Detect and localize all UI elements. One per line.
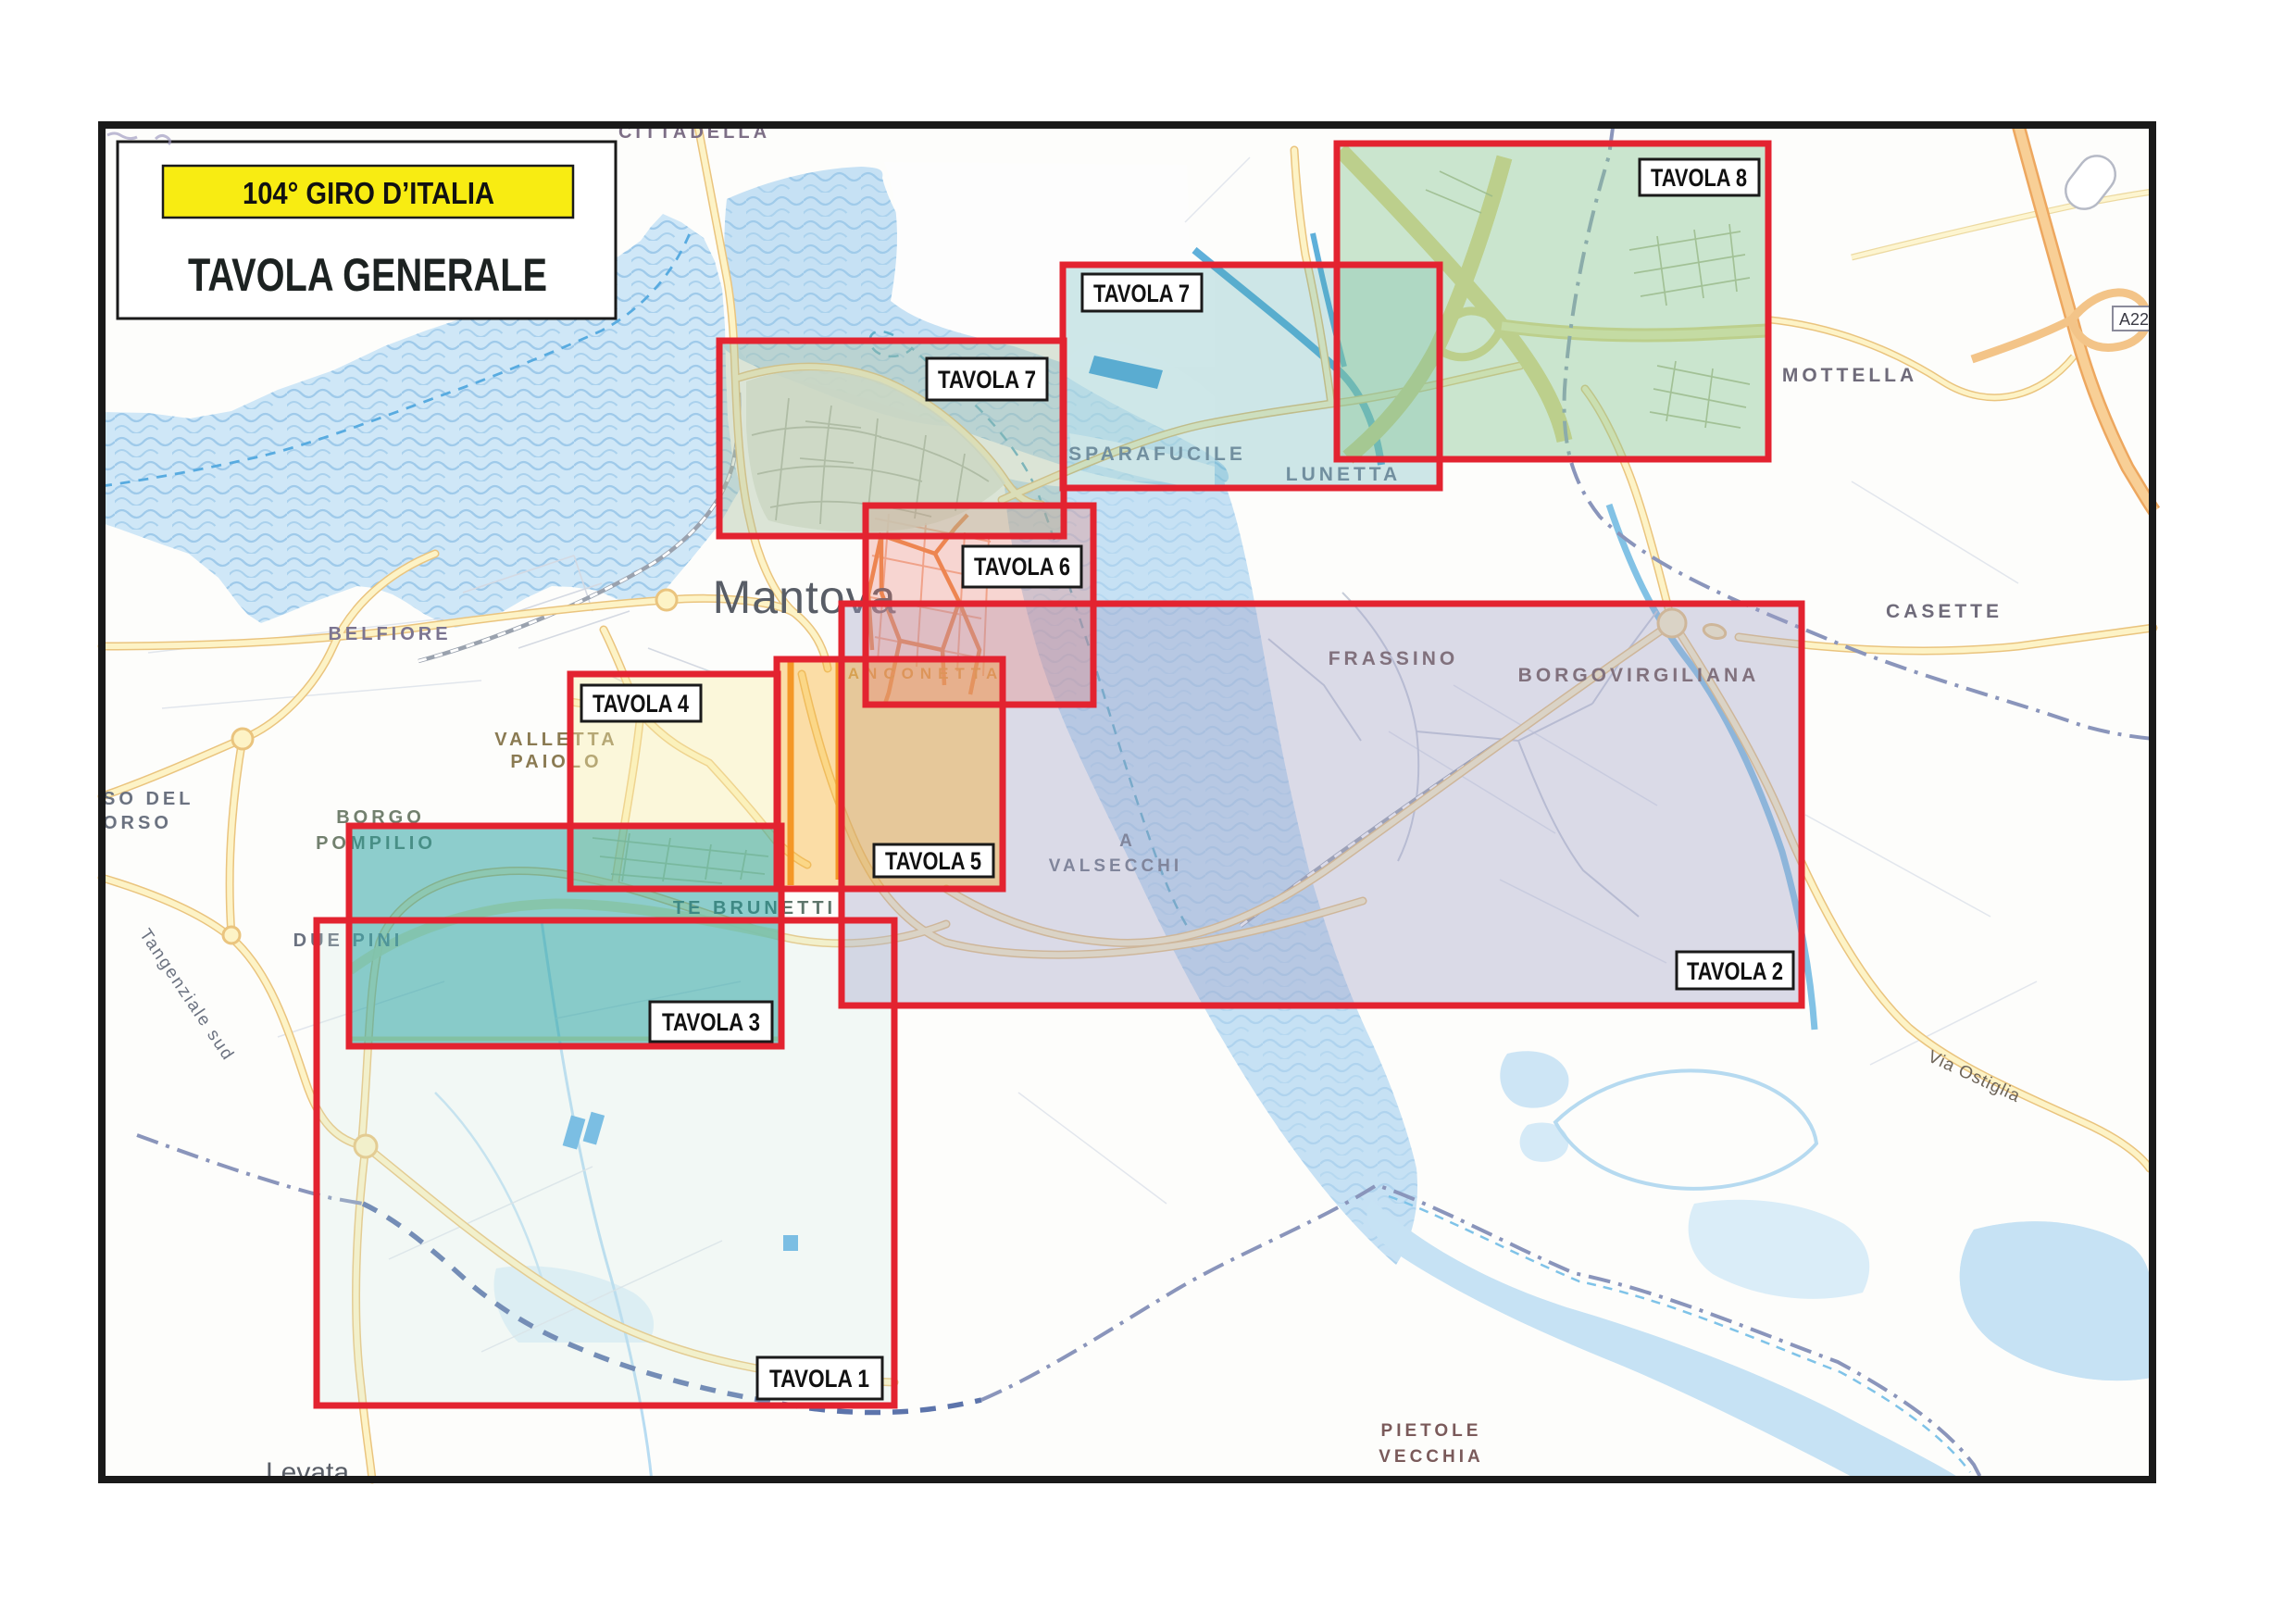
- svg-text:A22: A22: [2119, 310, 2149, 329]
- svg-text:TAVOLA 4: TAVOLA 4: [593, 690, 689, 718]
- svg-text:SO DEL: SO DEL: [103, 789, 193, 809]
- svg-text:PIETOLE: PIETOLE: [1381, 1421, 1482, 1441]
- svg-text:104° GIRO D’ITALIA: 104° GIRO D’ITALIA: [243, 176, 494, 210]
- svg-text:TAVOLA 8: TAVOLA 8: [1651, 164, 1747, 192]
- svg-text:TAVOLA 2: TAVOLA 2: [1687, 957, 1783, 985]
- svg-text:VECCHIA: VECCHIA: [1379, 1447, 1484, 1467]
- svg-text:CASETTE: CASETTE: [1886, 601, 2003, 622]
- svg-text:BELFIORE: BELFIORE: [328, 624, 451, 644]
- svg-text:TAVOLA 7: TAVOLA 7: [938, 366, 1036, 394]
- svg-text:TAVOLA 5: TAVOLA 5: [885, 847, 981, 875]
- svg-text:TAVOLA 6: TAVOLA 6: [974, 553, 1070, 581]
- svg-text:MOTTELLA: MOTTELLA: [1782, 365, 1917, 386]
- svg-text:TAVOLA 7: TAVOLA 7: [1093, 280, 1190, 307]
- svg-text:TAVOLA GENERALE: TAVOLA GENERALE: [188, 249, 547, 301]
- svg-text:ORSO: ORSO: [103, 813, 172, 833]
- svg-text:TAVOLA 3: TAVOLA 3: [662, 1008, 760, 1036]
- svg-text:TAVOLA 1: TAVOLA 1: [769, 1365, 869, 1393]
- svg-text:Levata: Levata: [266, 1457, 349, 1488]
